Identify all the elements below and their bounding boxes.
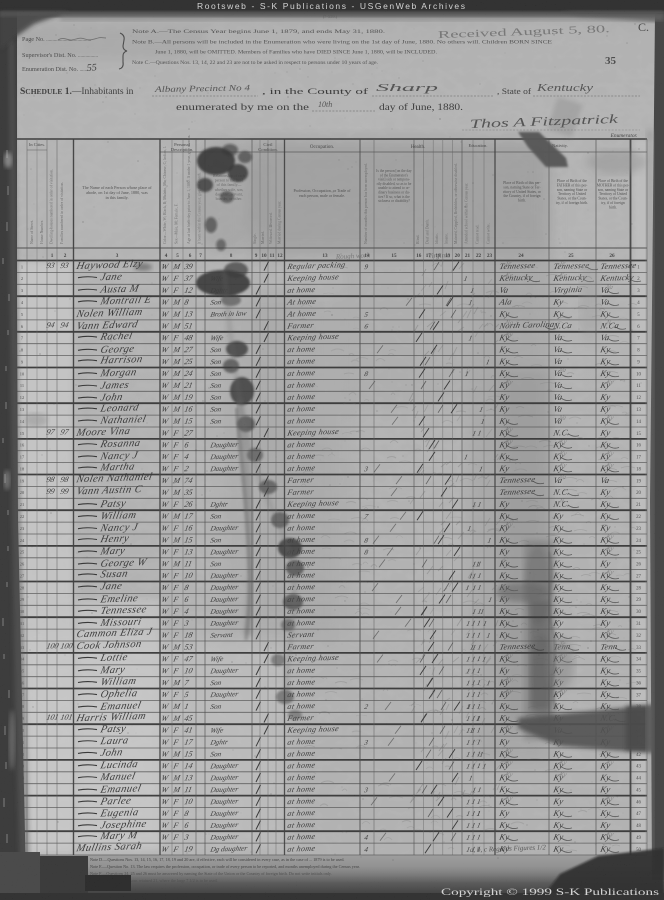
svg-text:Copyright © 1999 S-K Publicati: Copyright © 1999 S-K Publications <box>441 887 659 898</box>
